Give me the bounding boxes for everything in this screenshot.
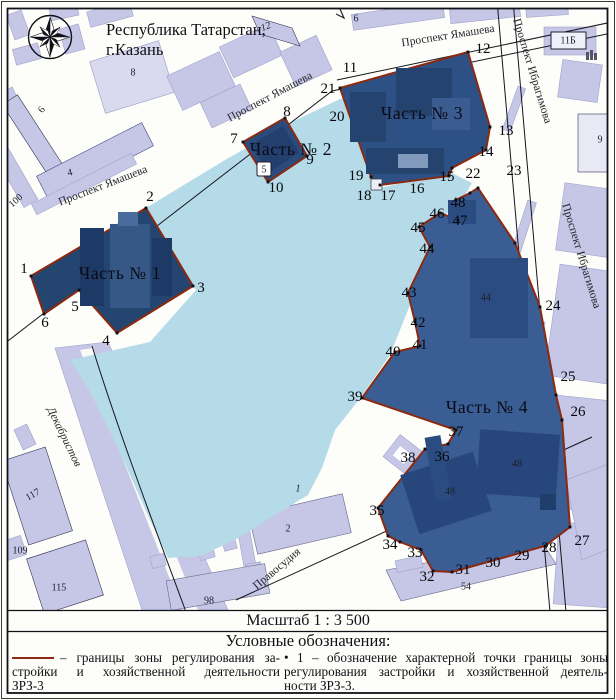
boundary-point-marker: [447, 443, 450, 446]
point-label-2: 2: [146, 189, 154, 205]
boundary-point-marker: [116, 332, 119, 335]
map-shape: [594, 53, 597, 60]
point-label-3: 3: [197, 280, 205, 296]
point-label-12: 12: [476, 41, 491, 57]
point-label-6: 6: [41, 315, 49, 331]
legend-boundary-text-3: ЗРЗ-3: [12, 679, 280, 693]
zone-label: Часть № 2: [250, 139, 332, 159]
map-shape: [6, 10, 30, 40]
point-label-17: 17: [381, 188, 397, 204]
point-label-21: 21: [321, 81, 336, 97]
tree-symbol-icon: [336, 9, 344, 18]
point-label-32: 32: [420, 569, 435, 585]
point-label-38: 38: [401, 450, 416, 466]
map-shape: [27, 540, 104, 614]
building-label: 9: [598, 135, 603, 146]
legend-point-text-1: • 1 – обозначение характерной точки гран…: [284, 651, 608, 665]
boundary-point-marker: [30, 275, 33, 278]
point-label-5: 5: [71, 299, 79, 315]
map-shape: [398, 154, 428, 168]
compass-rose: [29, 16, 72, 59]
map-shape: [586, 52, 589, 60]
point-label-37: 37: [449, 424, 465, 440]
point-label-45: 45: [411, 220, 426, 236]
boundary-point-marker: [539, 306, 542, 309]
point-label-20: 20: [330, 109, 345, 125]
point-label-18: 18: [357, 188, 372, 204]
map-title-city: г.Казань: [106, 40, 266, 60]
building-label: 115: [52, 583, 67, 594]
boundary-point-marker: [561, 419, 564, 422]
map-shape: [118, 212, 138, 226]
point-label-10: 10: [269, 180, 284, 196]
legend-right-column: • 1 – обозначение характерной точки гран…: [284, 651, 608, 693]
point-label-29: 29: [515, 548, 530, 564]
point-label-7: 7: [230, 131, 238, 147]
point-label-1: 1: [20, 261, 28, 277]
map-shape: [590, 50, 593, 60]
boundary-point-marker: [78, 289, 81, 292]
zone-label: Часть № 3: [381, 103, 463, 123]
boundary-point-marker: [489, 126, 492, 129]
point-label-46: 46: [430, 206, 446, 222]
boundary-point-marker: [379, 184, 382, 187]
building-label: 109: [13, 546, 28, 557]
boundary-point-marker: [192, 285, 195, 288]
legend-title: Условные обозначения:: [8, 632, 608, 650]
building-label: 2: [286, 524, 291, 535]
point-label-42: 42: [411, 315, 426, 331]
boundary-point-marker: [370, 176, 373, 179]
point-label-27: 27: [575, 533, 591, 549]
legend-boundary-entry: – границы зоны регулирования за-: [12, 651, 280, 665]
point-label-28: 28: [542, 540, 557, 556]
boundary-point-marker: [399, 541, 402, 544]
point-label-19: 19: [349, 168, 364, 184]
legend-left-column: – границы зоны регулирования за- стройки…: [12, 651, 280, 693]
point-label-35: 35: [370, 503, 385, 519]
building-label: 6: [354, 14, 359, 25]
point-label-31: 31: [456, 562, 471, 578]
building-label: 11Б: [560, 36, 576, 47]
point-label-40: 40: [386, 344, 401, 360]
boundary-point-marker: [467, 51, 470, 54]
point-label-14: 14: [479, 144, 495, 160]
point-label-36: 36: [435, 449, 451, 465]
boundary-point-marker: [339, 87, 342, 90]
building-label: 48: [512, 459, 522, 470]
point-label-11: 11: [343, 60, 357, 76]
point-label-41: 41: [413, 337, 428, 353]
legend-point-text-3: ности ЗРЗ-3.: [284, 679, 608, 693]
point-label-25: 25: [561, 369, 576, 385]
point-label-8: 8: [283, 104, 291, 120]
point-label-15: 15: [440, 169, 455, 185]
legend-boundary-text-1: – границы зоны регулирования за-: [60, 650, 280, 665]
building-label: 54: [461, 582, 471, 593]
point-label-22: 22: [466, 166, 481, 182]
point-label-9: 9: [306, 152, 314, 168]
map-shape: [470, 258, 528, 338]
boundary-point-marker: [569, 526, 572, 529]
boundary-line-swatch: [12, 657, 54, 659]
point-label-34: 34: [383, 537, 399, 553]
city-map: Проспект ЯмашеваПроспект ЯмашеваПроспект…: [0, 0, 616, 700]
boundary-point-marker: [469, 192, 472, 195]
point-label-16: 16: [410, 181, 426, 197]
point-label-48: 48: [451, 195, 466, 211]
boundary-point-marker: [242, 141, 245, 144]
map-shape: [49, 3, 79, 21]
point-label-47: 47: [453, 213, 469, 229]
zone-label: Часть № 1: [79, 263, 161, 283]
point-label-24: 24: [546, 298, 562, 314]
map-shape: [540, 494, 556, 510]
building-label: 48: [445, 487, 455, 498]
map-shape: [449, 2, 520, 23]
point-label-43: 43: [402, 285, 417, 301]
boundary-point-marker: [514, 242, 517, 245]
legend-boundary-text-2: стройки и хозяйственной деятельности: [12, 665, 280, 679]
point-label-13: 13: [499, 123, 514, 139]
building-label: 8: [131, 68, 136, 79]
map-page: { "title": {"line1": "Республика Татарст…: [0, 0, 616, 700]
zone-label: Часть № 4: [446, 397, 528, 417]
boundary-point-marker: [424, 448, 427, 451]
boundary-point-marker: [145, 207, 148, 210]
point-label-44: 44: [420, 241, 436, 257]
map-shape: [14, 424, 36, 450]
scale-label: Масштаб 1 : 3 500: [8, 611, 608, 631]
legend-point-text-2: регулирования застройки и хозяйственной …: [284, 665, 608, 679]
point-label-30: 30: [486, 555, 501, 571]
map-title: Республика Татарстан, г.Казань: [106, 20, 266, 60]
building-label: 44: [481, 293, 491, 304]
boundary-point-marker: [555, 394, 558, 397]
point-label-33: 33: [408, 545, 423, 561]
point-label-39: 39: [348, 389, 363, 405]
map-shape: [545, 264, 616, 384]
boundary-point-marker: [451, 571, 454, 574]
map-title-region: Республика Татарстан,: [106, 20, 266, 40]
building-label: 98: [204, 596, 214, 607]
map-shape: [558, 59, 603, 102]
point-label-26: 26: [571, 404, 587, 420]
map-shape: [526, 3, 569, 18]
point-label-23: 23: [507, 163, 522, 179]
map-shape: [351, 2, 444, 31]
map-area: Проспект ЯмашеваПроспект ЯмашеваПроспект…: [0, 0, 616, 614]
building-label: 1: [296, 484, 301, 495]
boundary-point-marker: [477, 187, 480, 190]
building-label: 6: [36, 105, 48, 116]
point-label-4: 4: [102, 333, 110, 349]
building-label: 5: [262, 165, 267, 176]
